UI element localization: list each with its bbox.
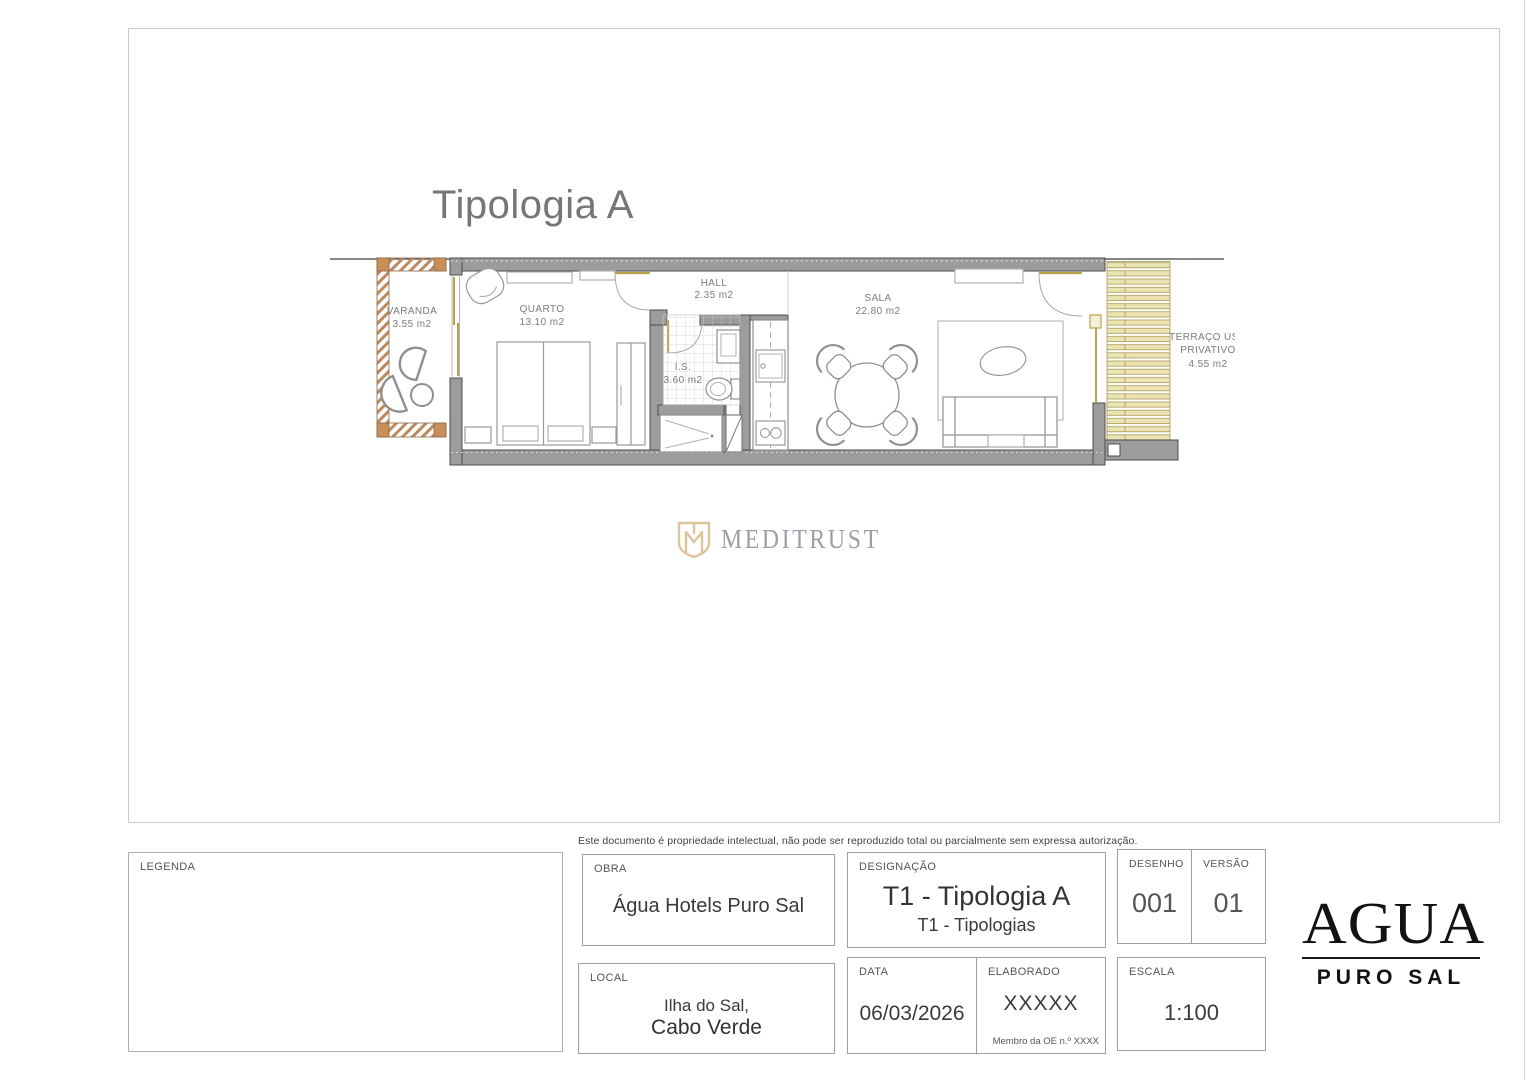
versao-value: 01 <box>1192 888 1265 919</box>
kitchen-sink <box>756 350 785 382</box>
desenho-value: 001 <box>1118 888 1191 919</box>
dining-set <box>810 338 923 451</box>
room-label-terraco-1: TERRAÇO USO <box>1169 332 1235 343</box>
room-area-varanda: 3.55 m2 <box>393 319 432 330</box>
room-label-quarto: QUARTO <box>520 304 565 315</box>
obra-box: OBRA Água Hotels Puro Sal <box>582 854 835 946</box>
page-edge-line <box>1524 0 1525 1080</box>
technical-shaft <box>726 415 742 452</box>
local-box: LOCAL Ilha do Sal, Cabo Verde <box>578 963 835 1054</box>
elaborado-note: Membro da OE n.º XXXX <box>993 1036 1099 1047</box>
room-label-varanda: VARANDA <box>387 306 437 317</box>
floor-plan: VARANDA 3.55 m2 QUARTO 13.10 m2 HALL 2.3… <box>325 245 1235 480</box>
data-elaborado-box: DATA 06/03/2026 ELABORADO XXXXX Membro d… <box>847 957 1106 1054</box>
room-label-hall: HALL <box>701 278 728 289</box>
agua-logo-subtitle: PURO SAL <box>1302 966 1480 990</box>
room-area-terraco: 4.55 m2 <box>1189 359 1228 370</box>
elaborado-label: ELABORADO <box>988 966 1060 978</box>
data-value: 06/03/2026 <box>848 1002 976 1026</box>
legenda-box: LEGENDA <box>128 852 563 1052</box>
tv-console <box>955 269 1023 283</box>
versao-cell: VERSÃO 01 <box>1192 850 1265 943</box>
balcony-glass-door <box>452 275 460 378</box>
shower <box>660 415 722 452</box>
nightstand-right <box>592 427 616 443</box>
local-value-line2: Cabo Verde <box>579 1016 834 1040</box>
balcony-table <box>411 384 433 406</box>
bedroom-door <box>615 273 650 310</box>
agua-logo-name: AGUA <box>1302 894 1480 954</box>
terrace-door <box>1039 273 1101 403</box>
desenho-versao-box: DESENHO 001 VERSÃO 01 <box>1117 849 1266 944</box>
meditrust-shield-icon <box>676 518 712 560</box>
data-cell: DATA 06/03/2026 <box>848 958 977 1053</box>
elaborado-cell: ELABORADO XXXXX Membro da OE n.º XXXX <box>977 958 1105 1053</box>
desenho-cell: DESENHO 001 <box>1118 850 1192 943</box>
disclaimer-text: Este documento é propriedade intelectual… <box>578 835 1137 847</box>
watermark-text: MEDITRUST <box>721 524 881 555</box>
room-area-quarto: 13.10 m2 <box>520 317 565 328</box>
room-label-terraco-2: PRIVATIVO <box>1180 345 1235 356</box>
designacao-label: DESIGNAÇÃO <box>859 861 936 873</box>
toilet <box>706 378 740 400</box>
designacao-value: T1 - Tipologia A <box>848 881 1105 912</box>
drawing-sheet: Tipologia A <box>0 0 1528 1080</box>
watermark: MEDITRUST <box>676 518 903 560</box>
legenda-label: LEGENDA <box>140 861 195 873</box>
room-area-is: 3.60 m2 <box>664 375 703 386</box>
escala-value: 1:100 <box>1118 1000 1265 1026</box>
room-area-hall: 2.35 m2 <box>695 290 734 301</box>
room-label-is: I.S. <box>675 362 692 373</box>
obra-value: Água Hotels Puro Sal <box>583 895 834 918</box>
kitchen <box>753 271 788 450</box>
escala-box: ESCALA 1:100 <box>1117 957 1266 1051</box>
local-value-line1: Ilha do Sal, <box>579 996 834 1016</box>
sofa <box>943 397 1057 447</box>
cooktop <box>756 421 785 445</box>
desenho-label: DESENHO <box>1129 858 1184 870</box>
designacao-box: DESIGNAÇÃO T1 - Tipologia A T1 - Tipolog… <box>847 852 1106 948</box>
elaborado-value: XXXXX <box>977 992 1105 1016</box>
agua-logo: AGUA PURO SAL <box>1302 894 1480 990</box>
versao-label: VERSÃO <box>1203 858 1249 870</box>
terrace-pillar <box>1108 444 1120 456</box>
coffee-table <box>978 343 1028 379</box>
plan-title: Tipologia A <box>432 183 634 228</box>
designacao-subvalue: T1 - Tipologias <box>848 915 1105 936</box>
room-label-sala: SALA <box>864 293 891 304</box>
agua-logo-rule <box>1302 957 1480 959</box>
nightstand-left <box>465 427 491 443</box>
data-label: DATA <box>859 966 888 978</box>
double-bed <box>497 342 590 445</box>
terrace-deck <box>1107 262 1170 449</box>
obra-label: OBRA <box>594 863 627 875</box>
local-label: LOCAL <box>590 972 628 984</box>
wardrobe <box>617 343 645 445</box>
room-area-sala: 22.80 m2 <box>856 306 901 317</box>
escala-label: ESCALA <box>1129 966 1175 978</box>
lounge-chair-1 <box>396 344 426 381</box>
living-room-furniture <box>810 269 1063 452</box>
